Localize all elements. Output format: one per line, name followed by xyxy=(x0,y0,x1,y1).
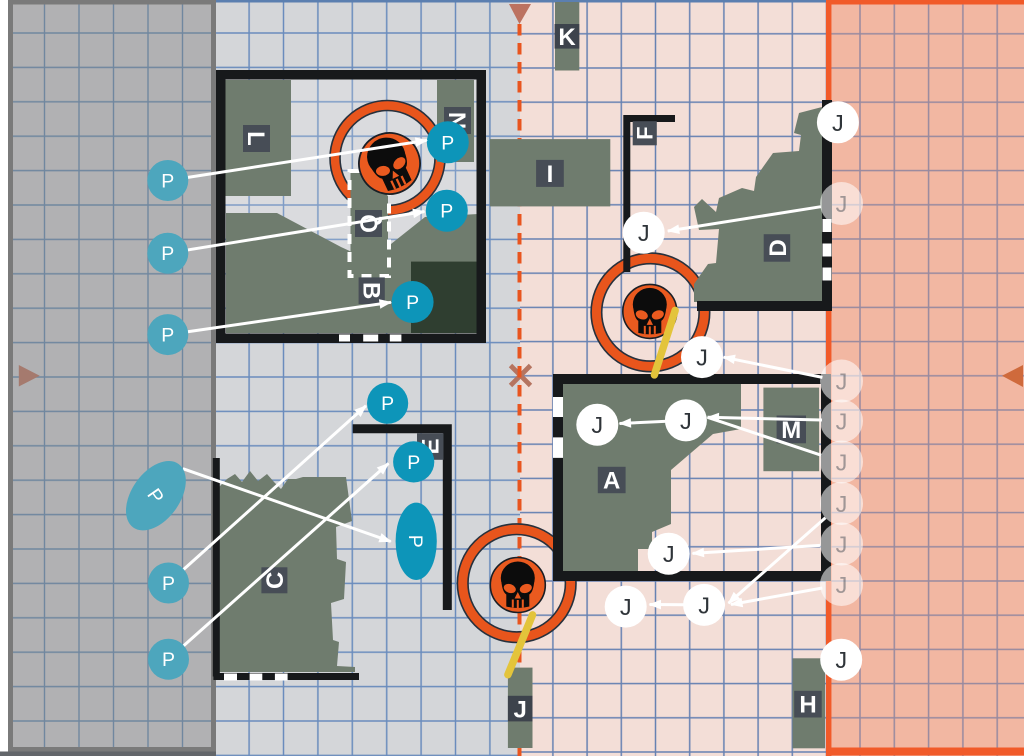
svg-text:D: D xyxy=(765,239,792,256)
svg-text:P: P xyxy=(441,132,454,154)
svg-text:J: J xyxy=(698,592,710,618)
svg-text:J: J xyxy=(514,697,527,724)
svg-text:J: J xyxy=(591,412,603,438)
svg-text:M: M xyxy=(781,417,801,444)
svg-text:J: J xyxy=(836,369,848,395)
svg-text:J: J xyxy=(836,450,848,476)
svg-text:P: P xyxy=(404,535,426,548)
svg-text:J: J xyxy=(832,110,844,136)
svg-text:J: J xyxy=(836,532,848,558)
svg-text:J: J xyxy=(836,491,848,517)
svg-text:J: J xyxy=(620,594,632,620)
svg-text:K: K xyxy=(558,24,576,51)
svg-text:J: J xyxy=(680,408,692,434)
svg-text:B: B xyxy=(357,282,384,299)
svg-text:P: P xyxy=(161,243,174,265)
svg-text:P: P xyxy=(407,452,420,474)
svg-text:J: J xyxy=(836,191,848,217)
svg-text:I: I xyxy=(547,161,554,188)
svg-text:P: P xyxy=(440,201,453,223)
svg-text:P: P xyxy=(161,171,174,193)
svg-text:J: J xyxy=(836,572,848,598)
svg-text:H: H xyxy=(799,692,816,719)
svg-text:J: J xyxy=(663,541,675,567)
svg-text:P: P xyxy=(381,393,394,415)
svg-text:A: A xyxy=(603,468,620,495)
svg-text:P: P xyxy=(162,649,175,671)
svg-text:J: J xyxy=(836,409,848,435)
svg-text:F: F xyxy=(633,126,658,139)
svg-text:L: L xyxy=(242,131,269,146)
svg-text:P: P xyxy=(162,573,175,595)
svg-text:P: P xyxy=(161,325,174,347)
svg-text:J: J xyxy=(638,220,650,246)
svg-text:J: J xyxy=(835,647,847,673)
svg-text:P: P xyxy=(406,292,419,314)
svg-text:Q: Q xyxy=(356,214,383,233)
svg-text:J: J xyxy=(696,345,708,371)
